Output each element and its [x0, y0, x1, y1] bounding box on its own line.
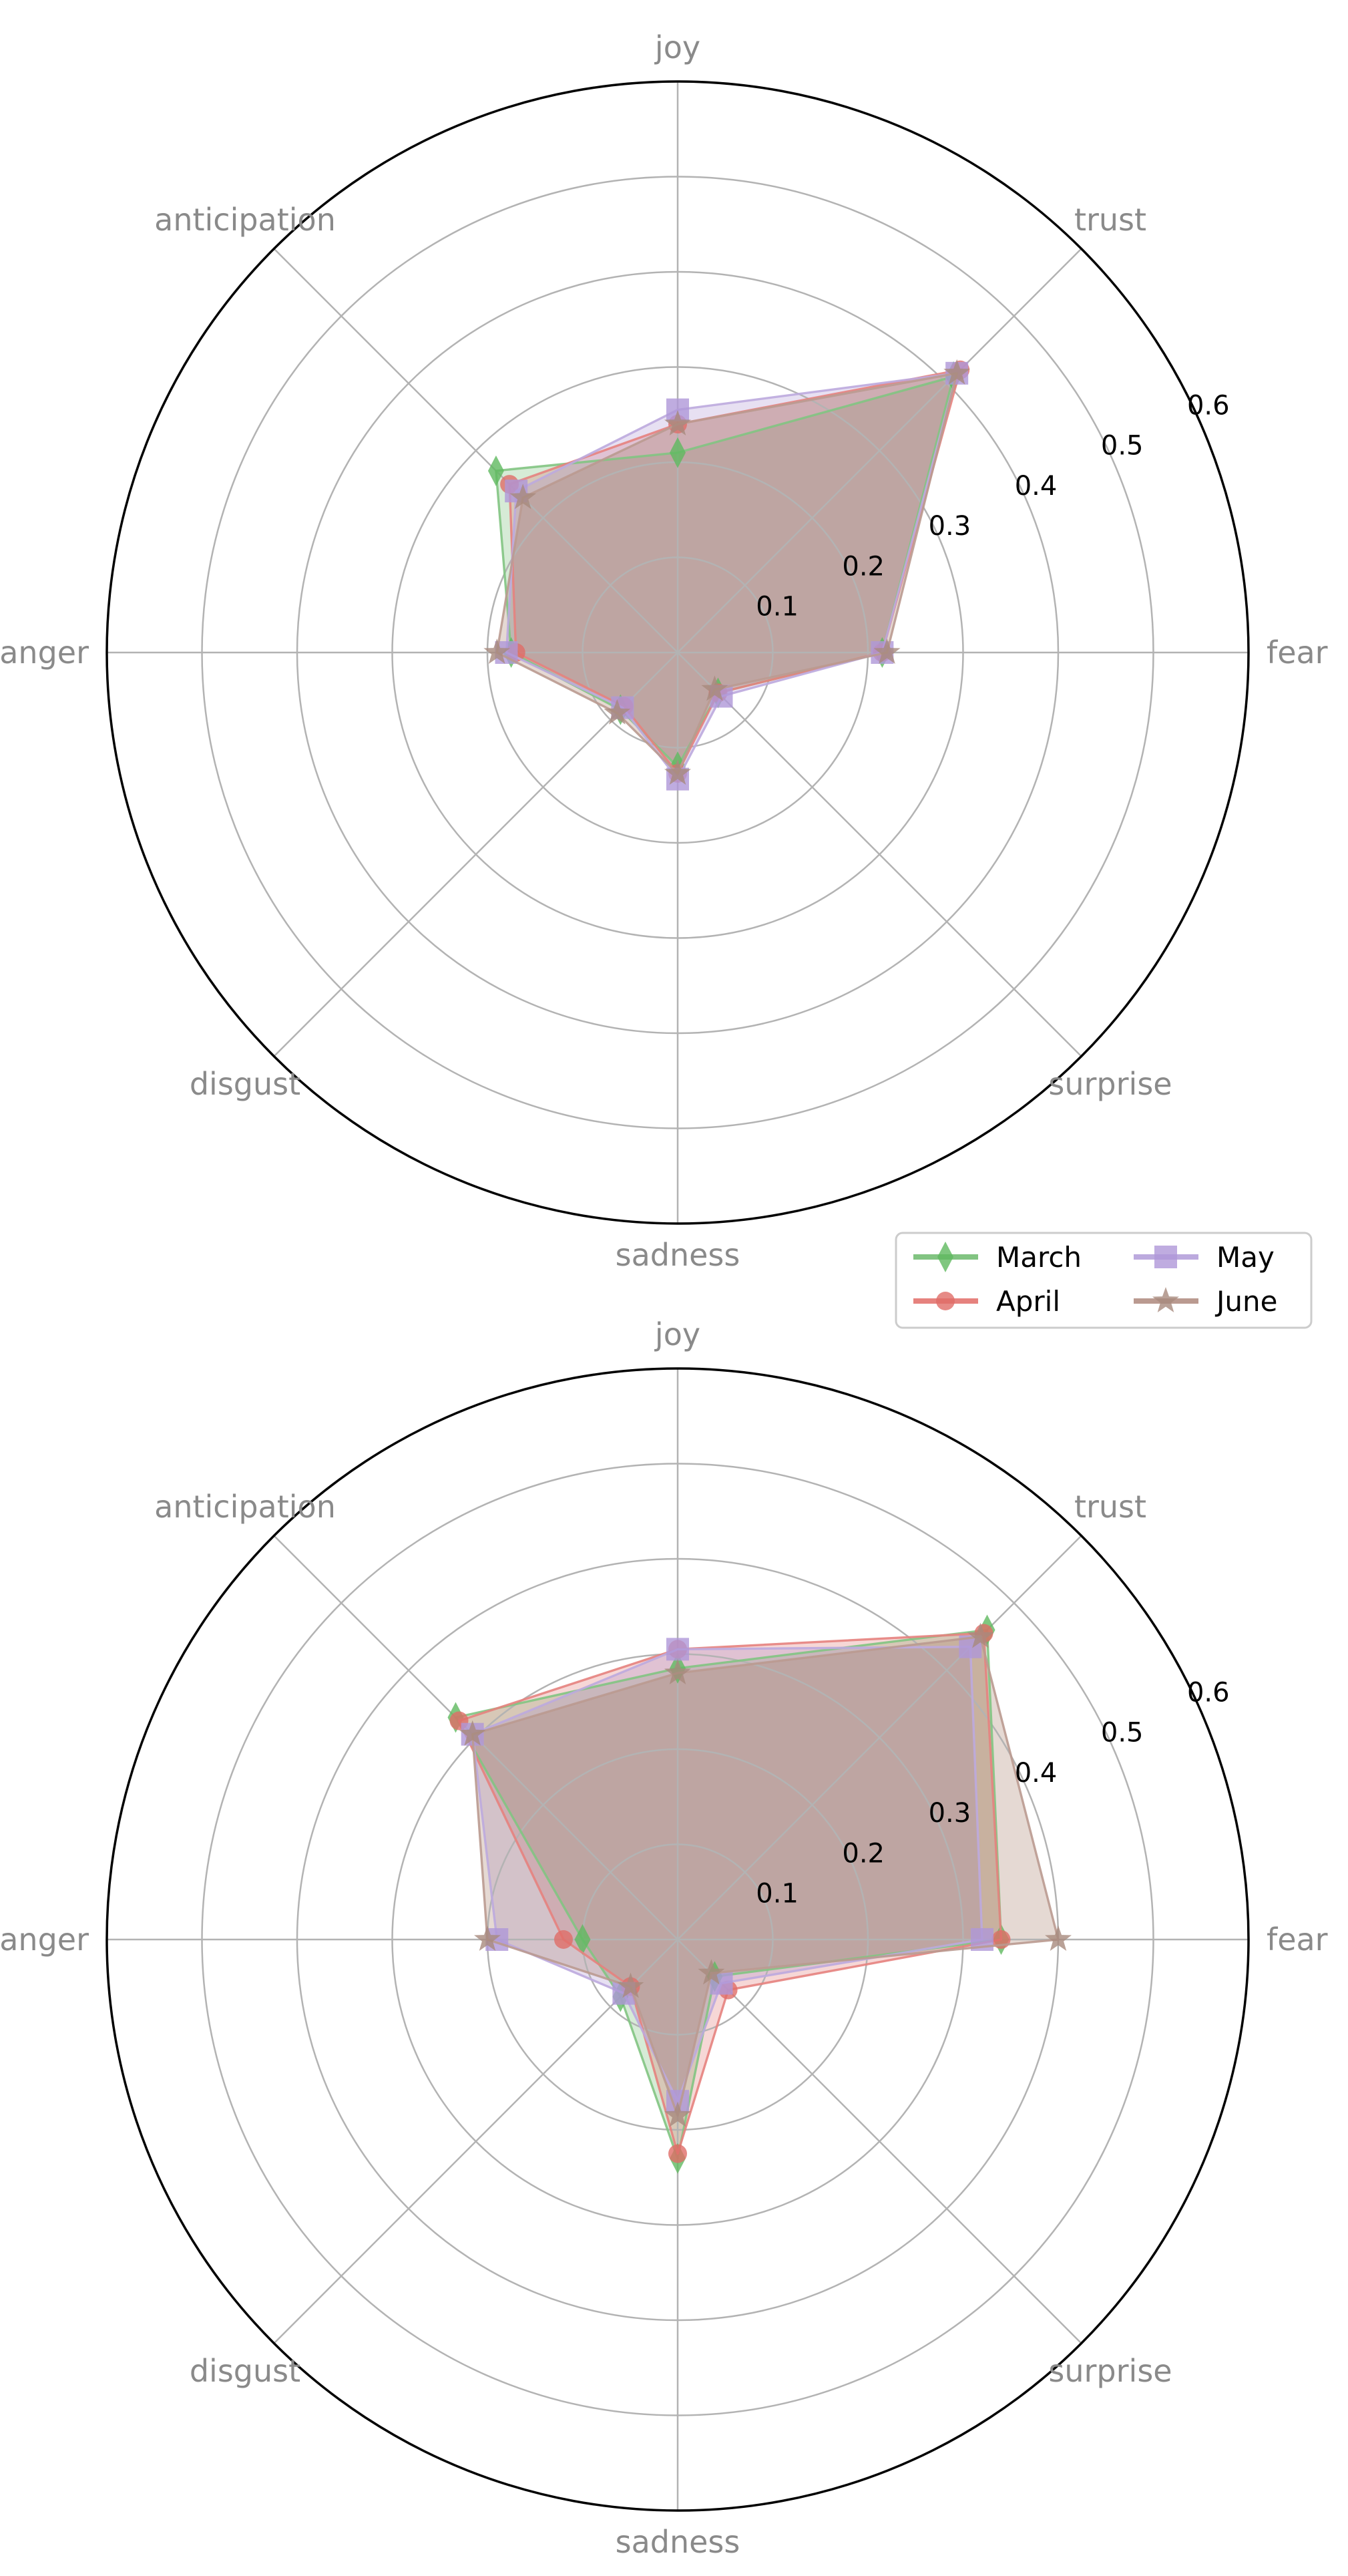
tick-label-0.4: 0.4 [1015, 471, 1058, 502]
axis-label-trust: trust [1074, 202, 1146, 238]
series-fills [496, 370, 960, 779]
axis-label-disgust: disgust [190, 1066, 300, 1102]
tick-label-0.4: 0.4 [1015, 1758, 1058, 1789]
axis-label-surprise: surprise [1048, 1066, 1172, 1102]
tick-label-0.3: 0.3 [929, 1798, 971, 1829]
spoke-surprise [678, 1940, 1082, 2344]
legend-label: April [996, 1285, 1060, 1318]
radar-chart-1: 0.10.20.30.40.50.6joytrustfearsurprisesa… [0, 29, 1328, 1273]
spoke-surprise [678, 653, 1082, 1057]
legend-square-icon [1154, 1246, 1177, 1268]
series-june-fill [497, 373, 957, 773]
legend: MarchAprilMayJune [896, 1233, 1311, 1328]
axis-label-anticipation: anticipation [154, 202, 336, 238]
legend-label: March [996, 1241, 1082, 1274]
axis-label-anger: anger [0, 1921, 89, 1958]
axis-label-disgust: disgust [190, 2353, 300, 2389]
legend-circle-icon [936, 1292, 955, 1310]
tick-label-0.2: 0.2 [842, 551, 885, 582]
marker-april-sadness [668, 2145, 687, 2163]
axis-label-joy: joy [654, 29, 700, 65]
tick-label-0.5: 0.5 [1101, 1718, 1144, 1749]
axis-label-anger: anger [0, 634, 89, 671]
radar-chart-2: 0.10.20.30.40.50.6joytrustfearsurprisesa… [0, 1316, 1328, 2560]
tick-label-0.1: 0.1 [756, 1879, 799, 1909]
axis-label-fear: fear [1267, 1921, 1328, 1958]
polar-grid [107, 1368, 1249, 2511]
radar-plot-svg: 0.10.20.30.40.50.6joytrustfearsurprisesa… [0, 0, 1348, 2576]
axis-label-surprise: surprise [1048, 2353, 1172, 2389]
legend-label: May [1216, 1241, 1275, 1274]
tick-label-0.1: 0.1 [756, 592, 799, 622]
legend-label: June [1214, 1285, 1277, 1318]
radar-figure: 0.10.20.30.40.50.6joytrustfearsurprisesa… [0, 0, 1348, 2576]
axis-label-trust: trust [1074, 1489, 1146, 1525]
axis-label-anticipation: anticipation [154, 1489, 336, 1525]
axis-label-fear: fear [1267, 634, 1328, 671]
polar-grid [107, 81, 1249, 1224]
tick-label-0.2: 0.2 [842, 1838, 885, 1869]
marker-may-joy [666, 1638, 689, 1660]
marker-april-anger [554, 1930, 573, 1949]
tick-label-0.6: 0.6 [1187, 1677, 1230, 1708]
axis-label-sadness: sadness [616, 2524, 740, 2560]
tick-label-0.5: 0.5 [1101, 431, 1144, 462]
tick-label-0.6: 0.6 [1187, 390, 1230, 421]
axis-label-sadness: sadness [616, 1237, 740, 1273]
tick-label-0.3: 0.3 [929, 511, 971, 542]
axis-label-joy: joy [654, 1316, 700, 1352]
